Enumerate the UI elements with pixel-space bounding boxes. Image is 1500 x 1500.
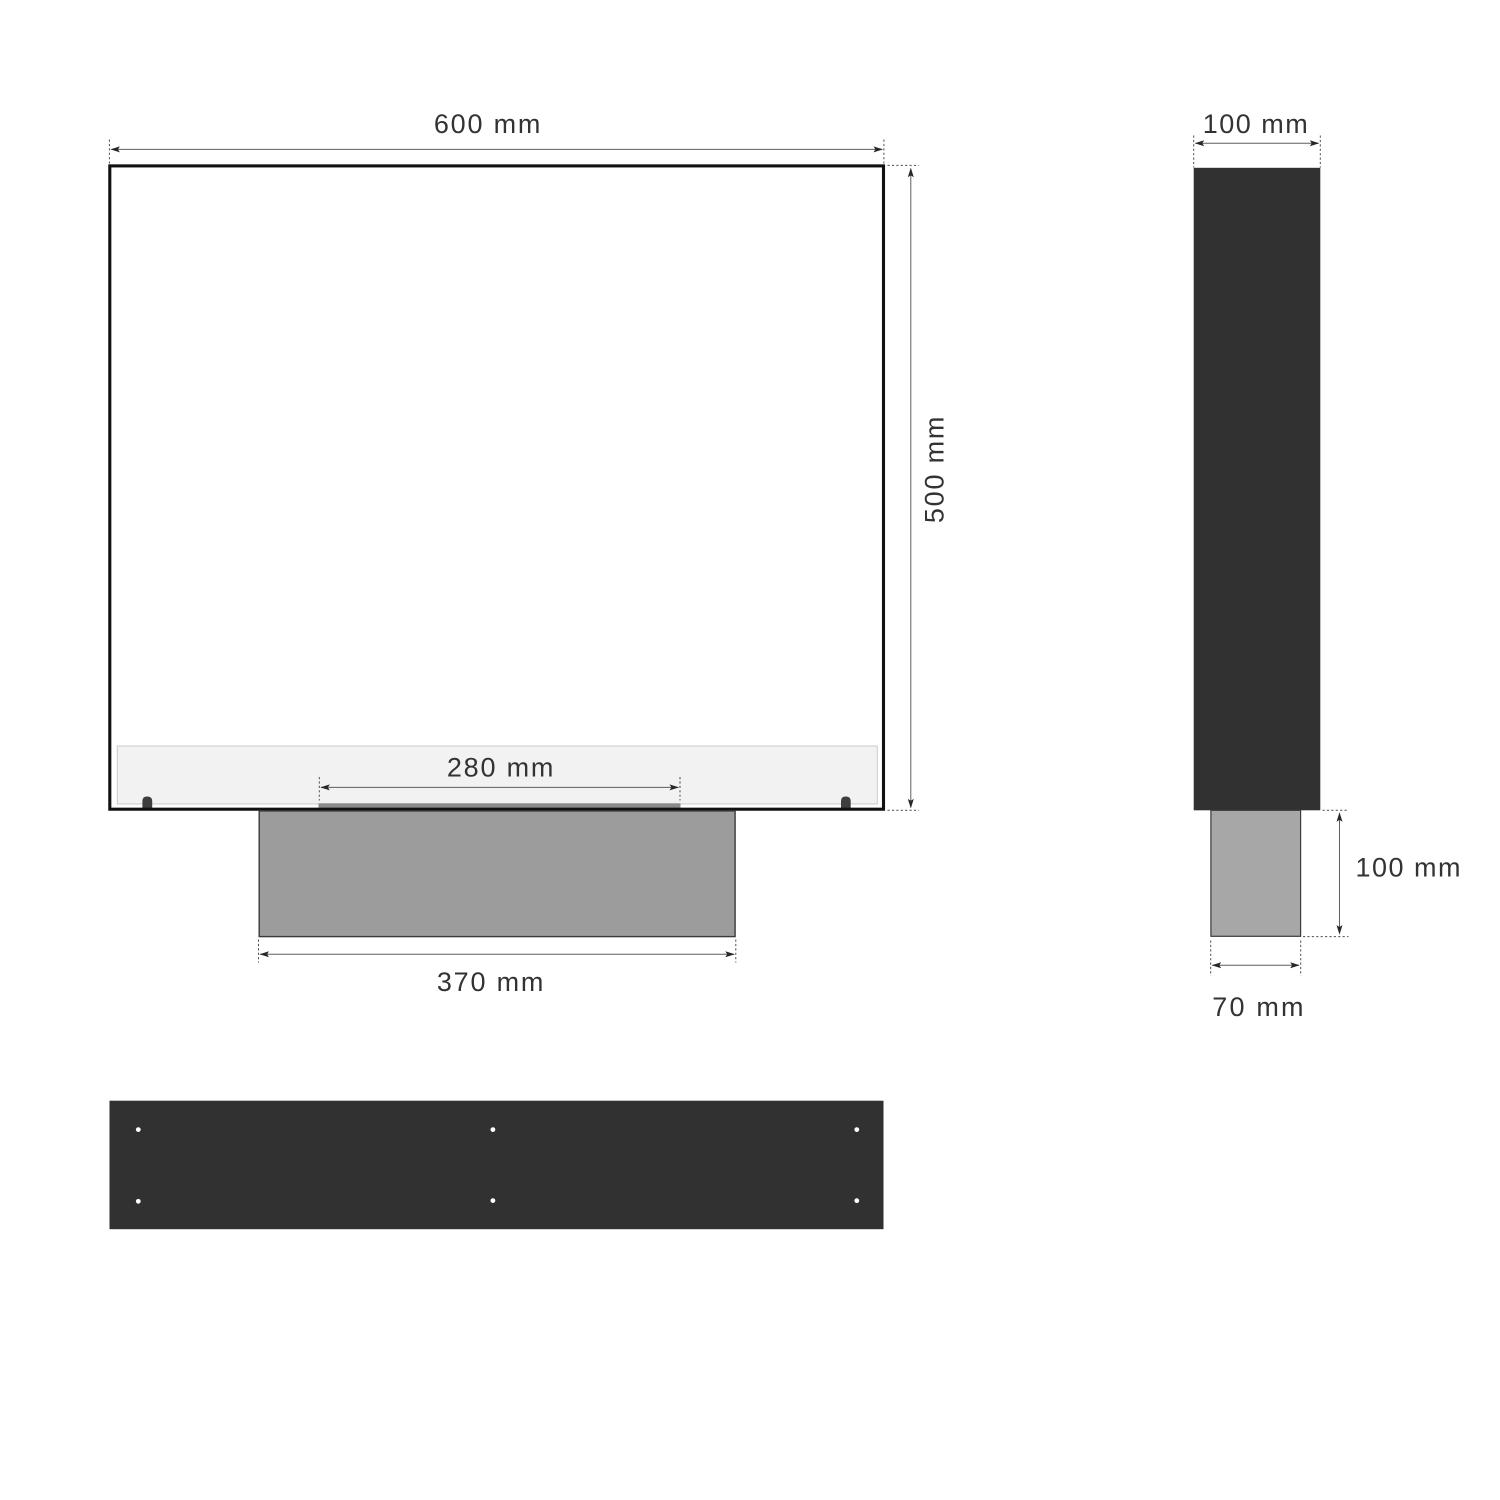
- svg-text:70 mm: 70 mm: [1212, 992, 1306, 1022]
- svg-text:280 mm: 280 mm: [447, 752, 555, 782]
- svg-text:600 mm: 600 mm: [434, 109, 542, 139]
- svg-text:370 mm: 370 mm: [437, 967, 545, 997]
- svg-text:500 mm: 500 mm: [920, 415, 950, 523]
- svg-text:100 mm: 100 mm: [1356, 852, 1463, 882]
- svg-text:100 mm: 100 mm: [1203, 109, 1310, 139]
